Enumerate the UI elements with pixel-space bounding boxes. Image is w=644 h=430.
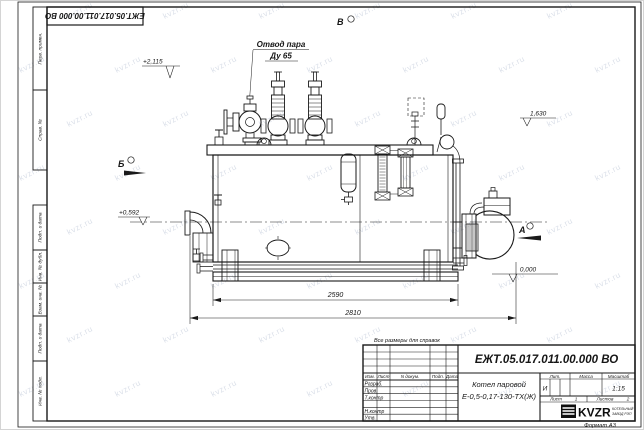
litera-label: Лит. [549,374,561,379]
boiler-base-skid [213,250,458,281]
mass-label: Масса [579,374,593,379]
row-razrab: Разраб. [365,382,383,388]
drawing-sheet: kvzr.rukvzr.rukvzr.rukvzr.rukvzr.rukvzr.… [0,0,644,430]
product-name-line1: Котел паровой [472,380,527,389]
view-b-arrow [124,171,146,176]
dosing-pot [341,154,356,205]
elevation-0592-label: +0,592 [119,210,139,217]
safety-valve-1 [261,72,295,145]
manhole [265,236,291,260]
shelf-cock [215,130,223,145]
dimension-2590: 2590 [213,284,458,306]
col-podp: Подп. [432,374,444,379]
col-izm: Изм. [365,374,375,379]
safety-valve-2 [298,72,332,145]
litera-mass-scale: Лит. Масса Масштаб И 1:15 [543,374,630,392]
elevation-0000: 0,000 [492,267,558,283]
steam-outlet-label-line1: Отвод пара [257,40,306,49]
row-nkontr: Н.контр [365,409,385,415]
col-data: Дата [445,374,459,379]
view-marker-a: А [517,223,541,241]
margin-label: Справ. № [38,119,44,141]
sheets-value: 2 [626,397,630,402]
water-level-gauges [375,146,413,200]
boiler-shell [207,145,453,262]
corner-stamp-doc-number: ЕЖТ.05.017.011.00.000 ВО [44,11,144,20]
steam-outlet-label-line2: Ду 65 [269,52,292,61]
margin-label: Взам. инв. № [38,285,44,315]
signature-rows: Разраб. Пров. Т.контр Н.контр Утв. [365,382,385,422]
view-marker-v: В [337,16,354,27]
dimension-2810-value: 2810 [344,310,361,317]
dimension-2810: 2810 [190,236,516,324]
steam-outlet-callout: Отвод пара Ду 65 [253,40,309,61]
margin-label: Инв. № подл. [38,376,44,406]
company-line2: ЗАВОД РЭП [612,412,632,416]
row-utv: Утв. [365,416,376,422]
pressure-sensor-siphon [437,104,460,163]
margin-label: Подп. и дата [38,212,44,242]
format-note: Формат А3 [584,423,616,429]
sheet-label: Лист [549,397,562,402]
col-dokum: N докум. [401,374,420,379]
dimension-2590-value: 2590 [327,292,344,299]
view-a-arrow [517,236,541,241]
sheet-count-row: Лист 1 Листов 2 [549,397,630,402]
corner-stamp: ЕЖТ.05.017.011.00.000 ВО [44,7,144,25]
row-tkontr: Т.контр [365,395,384,401]
company-name: KVZR [578,406,611,420]
sheets-label: Листов [596,397,614,402]
title-block: ЕЖТ.05.017.011.00.000 ВО Котел паровой Е… [363,345,635,422]
row-prov: Пров. [365,389,378,395]
margin-label: Перв. примен. [38,33,44,65]
view-a-label: А [518,225,526,235]
margin-label: Инв. № дубл. [38,252,44,282]
view-v-label: В [337,17,344,27]
revision-header-row: Изм. Лист N докум. Подп. Дата [365,374,458,379]
title-doc-number: ЕЖТ.05.017.011.00.000 ВО [475,354,618,366]
sheet-value: 1 [575,397,578,402]
margin-label: Подп. и дата [38,323,44,353]
elevation-0000-label: 0,000 [520,267,537,274]
reference-note: Все размеры для справок [374,338,440,344]
col-list: Лист [377,374,390,379]
elevation-2115-label: +2,115 [143,59,163,66]
boiler-drawing-svg: Перв. примен. Справ. № Подп. и дата Инв.… [0,0,644,430]
elevation-1630-label: 1,630 [530,111,547,118]
steam-outlet-valve [224,50,261,145]
elevation-0592: +0,592 [118,210,150,226]
lifting-lugs [257,138,421,145]
product-name-line2: Е-0,5-0,17-130-ТХ(Ж) [462,392,536,401]
company-logo: KVZR КОТЕЛЬНЫЙ ЗАВОД РЭП [561,405,634,420]
view-b-label: Б [118,159,125,169]
scale-value: 1:15 [612,386,625,393]
company-line1: КОТЕЛЬНЫЙ [612,407,634,411]
litera-value: И [543,386,548,393]
scale-label: Масштаб [608,374,630,379]
view-marker-b: Б [118,157,146,176]
margin-labels: Перв. примен. Справ. № Подп. и дата Инв.… [38,33,44,406]
elevation-1630: 1,630 [520,111,556,127]
burner [453,188,514,260]
elevation-2115: +2,115 [142,59,180,79]
drain-stubs [193,249,467,273]
